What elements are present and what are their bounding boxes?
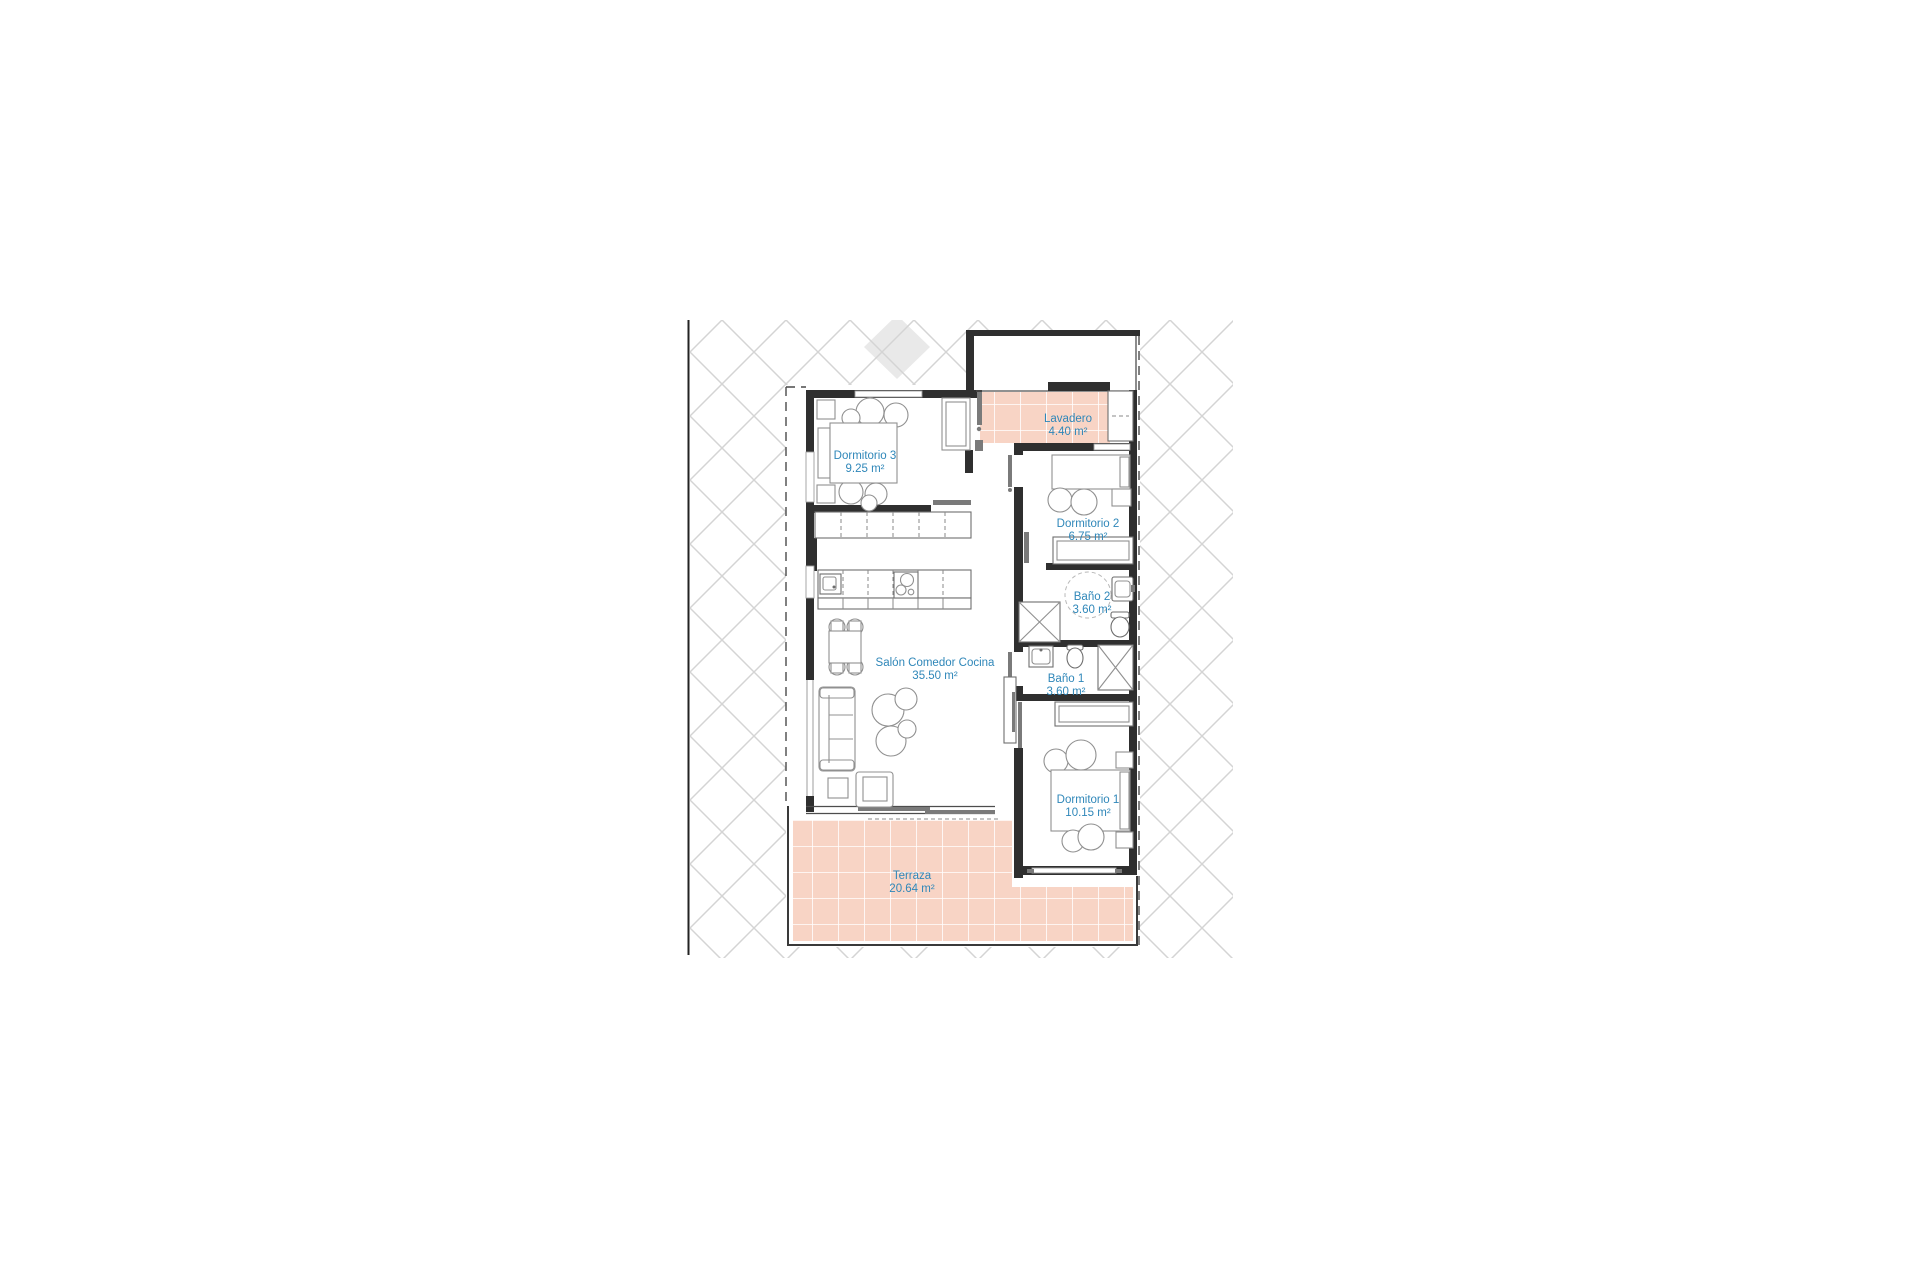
dormitorio2-door-leaf — [1008, 455, 1012, 487]
floor-plan-drawing: Dormitorio 3 9.25 m² Lavadero 4.40 m² Do… — [0, 0, 1920, 1280]
side-table — [828, 778, 848, 798]
dormitorio1-furniture — [1044, 702, 1133, 852]
double-bed — [1052, 455, 1130, 489]
room-area-dormitorio1: 10.15 m² — [1065, 807, 1111, 819]
terrace-slider-panel-1 — [858, 807, 930, 811]
room-label-dormitorio3: Dormitorio 3 — [834, 450, 897, 462]
room-area-lavadero: 4.40 m² — [1049, 426, 1088, 438]
headboard — [1120, 457, 1129, 487]
left-window-1 — [806, 452, 814, 502]
room-label-bano2: Baño 2 — [1074, 591, 1110, 603]
nightstand — [1116, 752, 1133, 768]
room-label-terraza: Terraza — [893, 870, 932, 882]
entry-door-handle — [977, 427, 981, 431]
floor-plan-page: Dormitorio 3 9.25 m² Lavadero 4.40 m² Do… — [0, 0, 1920, 1280]
dormitorio1-door-leaf — [1018, 702, 1022, 748]
dining-table — [829, 631, 861, 663]
nightstand — [1112, 489, 1131, 506]
room-area-terraza: 20.64 m² — [889, 883, 935, 895]
nightstand — [1116, 832, 1133, 848]
sofa — [819, 687, 855, 771]
left-window-2 — [806, 566, 814, 598]
room-area-salon: 35.50 m² — [912, 670, 958, 682]
entry-door-stop — [975, 440, 983, 451]
kitchen-bar — [818, 598, 971, 609]
toilet — [1067, 648, 1083, 668]
toilet — [1111, 617, 1129, 637]
lavadero-fixtures — [1108, 391, 1133, 441]
dormitorio3-door-leaf — [933, 500, 971, 505]
entry-door-leaf — [977, 392, 982, 425]
room-label-salon: Salón Comedor Cocina — [876, 657, 996, 669]
room-area-dormitorio3: 9.25 m² — [846, 463, 885, 475]
room-label-bano1: Baño 1 — [1048, 673, 1084, 685]
tv — [1012, 692, 1015, 732]
terrace-slider-panel-2 — [925, 810, 995, 814]
room-area-bano2: 3.60 m² — [1073, 604, 1112, 616]
room-area-dormitorio2: 6.75 m² — [1069, 531, 1108, 543]
nightstand — [817, 400, 835, 419]
bano2-door-leaf — [1024, 532, 1029, 563]
nightstand — [817, 485, 835, 503]
dormitorio3-window — [855, 391, 922, 397]
room-label-dormitorio1: Dormitorio 1 — [1057, 794, 1120, 806]
headboard — [818, 428, 830, 478]
room-label-lavadero: Lavadero — [1044, 413, 1092, 425]
room-label-dormitorio2: Dormitorio 2 — [1057, 518, 1120, 530]
headboard — [1120, 772, 1129, 829]
room-area-bano1: 3.60 m² — [1047, 686, 1086, 698]
